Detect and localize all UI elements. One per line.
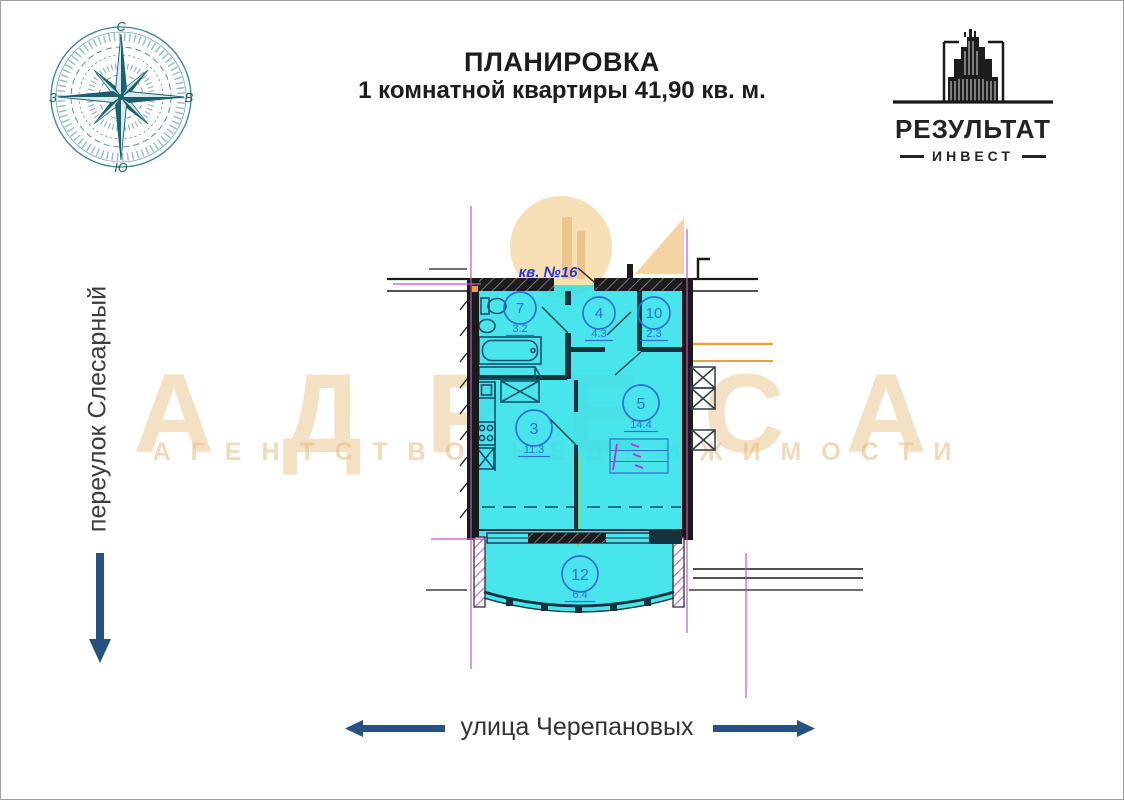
room-area: 14.4 <box>630 419 651 431</box>
room-area: 6.4 <box>572 589 587 601</box>
room-area: 2.3 <box>646 328 661 340</box>
dash-left <box>900 155 924 158</box>
logo-subtitle: ИНВЕСТ <box>932 148 1014 164</box>
compass-south-label: Ю <box>114 160 127 175</box>
svg-text:кв. №16: кв. №16 <box>519 264 579 281</box>
room-number: 5 <box>637 396 646 413</box>
room-number: 4 <box>595 305 603 322</box>
dash-right <box>1022 155 1046 158</box>
street-label-left: переулок Слесарный <box>84 286 113 532</box>
room-number: 12 <box>571 567 589 584</box>
building-icon <box>885 25 1061 107</box>
room-number: 7 <box>516 300 524 317</box>
compass-north-label: С <box>116 19 126 34</box>
room-area: 11.3 <box>524 444 545 456</box>
insulation-ticks <box>460 301 467 518</box>
room-number: 10 <box>646 305 663 322</box>
logo-subtitle-row: ИНВЕСТ <box>885 148 1061 164</box>
street-arrows <box>89 553 815 737</box>
logo-name: РЕЗУЛЬТАТ <box>885 114 1061 145</box>
street-label-bottom: улица Черепановых <box>31 713 1123 742</box>
room-number: 3 <box>530 421 539 438</box>
stair-shaft-boxes <box>691 367 715 450</box>
flyer-page: АДРЕСА АГЕНТСТВО НЕДВИЖИМОСТИ <box>0 0 1124 800</box>
arrow-down-icon <box>89 553 111 663</box>
room-area: 3.2 <box>512 323 527 335</box>
room-area: 4.3 <box>591 328 606 340</box>
company-logo: РЕЗУЛЬТАТ ИНВЕСТ <box>885 25 1061 164</box>
